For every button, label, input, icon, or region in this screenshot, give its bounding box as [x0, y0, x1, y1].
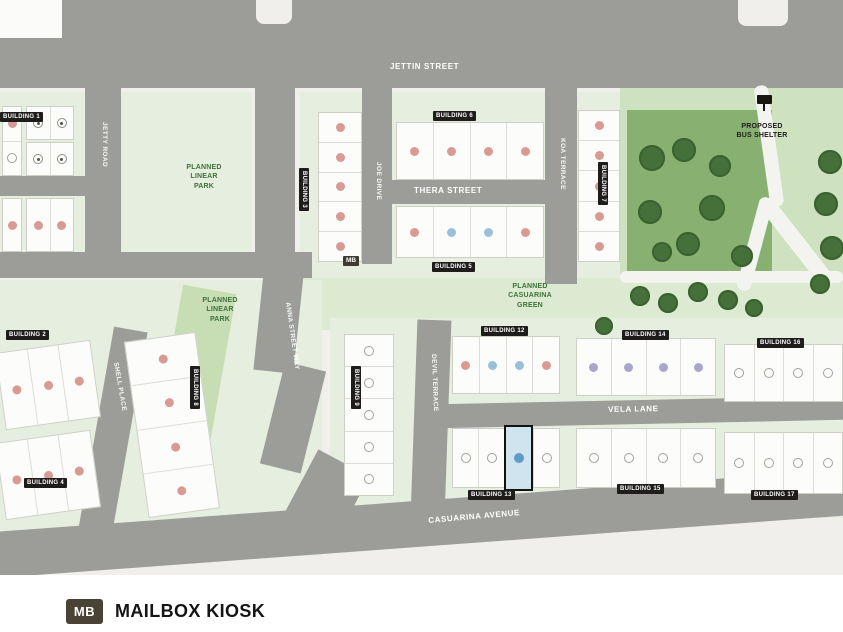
unit-status-dot: [521, 228, 530, 237]
unit-cell[interactable]: [532, 337, 559, 393]
unit-cell[interactable]: [611, 339, 646, 395]
street-label: JETTIN STREET: [390, 63, 459, 71]
unit-status-dot: [764, 458, 774, 468]
unit-status-dot: [461, 453, 471, 463]
building-footprint: [724, 344, 843, 402]
unit-status-dot: [364, 378, 374, 388]
bus-shelter-icon: [757, 95, 772, 111]
unit-cell[interactable]: [646, 429, 681, 487]
unit-status-dot: [823, 368, 833, 378]
unit-status-dot: [364, 410, 374, 420]
street-label: KOA TERRACE: [559, 138, 566, 190]
unit-cell[interactable]: [506, 123, 543, 179]
unit-status-dot: [410, 228, 419, 237]
map-legend: MB MAILBOX KIOSK: [0, 575, 843, 632]
tree-icon: [638, 200, 662, 224]
unit-status-dot: [364, 474, 374, 484]
unit-status-dot: [595, 212, 604, 221]
unit-cell[interactable]: [397, 123, 433, 179]
tree-icon: [718, 290, 738, 310]
tree-icon: [652, 242, 672, 262]
unit-status-dot: [43, 380, 53, 390]
building-footprint: [26, 142, 74, 176]
unit-status-dot: [793, 458, 803, 468]
unit-status-dot: [658, 453, 668, 463]
unit-status-dot: [8, 221, 17, 230]
unit-status-dot: [336, 153, 345, 162]
site-plan-map: BUILDING 1BUILDING 3BUILDING 6BUILDING 5…: [0, 0, 843, 575]
building-footprint: [452, 336, 560, 394]
unit-status-dot: [364, 442, 374, 452]
unit-status-dot: [595, 121, 604, 130]
unit-cell[interactable]: [478, 429, 504, 487]
unit-status-dot: [57, 118, 67, 128]
unit-status-dot: [694, 363, 703, 372]
unit-status-dot: [12, 384, 22, 394]
unit-status-dot: [336, 123, 345, 132]
unit-cell[interactable]: [579, 231, 619, 261]
unit-cell[interactable]: [506, 337, 533, 393]
unit-cell[interactable]: [754, 433, 784, 493]
building-label-chip: BUILDING 4: [24, 478, 67, 488]
road: [0, 0, 843, 88]
building-footprint: [26, 198, 74, 252]
building-footprint: [318, 112, 362, 262]
unit-status-dot: [589, 453, 599, 463]
legend-label: MAILBOX KIOSK: [115, 601, 265, 622]
unit-cell[interactable]: [319, 113, 361, 142]
unit-status-dot: [170, 442, 180, 452]
unit-cell[interactable]: [3, 199, 21, 251]
building-label-chip: BUILDING 13: [468, 490, 515, 500]
building-footprint: [724, 432, 843, 494]
selected-unit[interactable]: [504, 425, 533, 491]
unit-status-dot: [793, 368, 803, 378]
unit-cell[interactable]: [27, 199, 50, 251]
unit-cell[interactable]: [813, 433, 843, 493]
building-footprint: [2, 198, 22, 252]
unit-status-dot: [447, 228, 456, 237]
building-label-chip: BUILDING 8: [190, 366, 200, 409]
unit-cell[interactable]: [470, 207, 507, 257]
building-footprint: [452, 428, 560, 488]
tree-icon: [814, 192, 838, 216]
unit-status-dot: [34, 221, 43, 230]
unit-status-dot: [659, 363, 668, 372]
unit-cell[interactable]: [319, 172, 361, 202]
bus-shelter-label: PROPOSED BUS SHELTER: [726, 122, 798, 141]
building-footprint: [0, 430, 101, 521]
tree-icon: [818, 150, 842, 174]
tree-icon: [709, 155, 731, 177]
curb-cut: [738, 0, 788, 26]
unit-status-dot: [764, 368, 774, 378]
unit-status-dot: [74, 376, 84, 386]
unit-cell[interactable]: [319, 201, 361, 231]
unit-cell[interactable]: [397, 207, 433, 257]
unit-status-dot: [176, 486, 186, 496]
unit-cell[interactable]: [345, 335, 393, 366]
tree-icon: [639, 145, 665, 171]
unit-status-dot: [57, 154, 67, 164]
building-footprint: [396, 206, 544, 258]
unit-cell[interactable]: [579, 111, 619, 140]
unit-cell[interactable]: [50, 143, 74, 175]
unit-status-dot: [515, 361, 524, 370]
unit-cell[interactable]: [680, 429, 715, 487]
building-label-chip: BUILDING 9: [351, 366, 361, 409]
unit-cell[interactable]: [470, 123, 507, 179]
tree-icon: [745, 299, 763, 317]
tree-icon: [820, 236, 843, 260]
building-footprint: [344, 334, 394, 496]
unit-status-dot: [410, 147, 419, 156]
tree-icon: [676, 232, 700, 256]
unit-status-dot: [158, 354, 168, 364]
building-label-chip: BUILDING 17: [751, 490, 798, 500]
building-footprint: [0, 340, 101, 431]
unit-status-dot: [734, 458, 744, 468]
mailbox-kiosk-marker[interactable]: MB: [343, 256, 359, 266]
building-footprint: [396, 122, 544, 180]
unit-cell[interactable]: [3, 141, 21, 176]
unit-cell[interactable]: [725, 433, 754, 493]
unit-cell[interactable]: [680, 339, 715, 395]
tree-icon: [658, 293, 678, 313]
building-label-chip: BUILDING 1: [0, 112, 43, 122]
unit-status-dot: [484, 147, 493, 156]
park-label: PLANNED CASUARINA GREEN: [492, 282, 568, 310]
street-label: THERA STREET: [414, 187, 482, 195]
unit-status-dot: [447, 147, 456, 156]
unit-cell[interactable]: [453, 337, 479, 393]
unit-status-dot: [823, 458, 833, 468]
unit-cell[interactable]: [50, 199, 74, 251]
street-label: JETTY ROAD: [101, 122, 108, 167]
tree-icon: [630, 286, 650, 306]
tree-icon: [731, 245, 753, 267]
unit-cell[interactable]: [577, 429, 611, 487]
unit-status-dot: [57, 221, 66, 230]
tree-icon: [699, 195, 725, 221]
unit-status-dot: [336, 212, 345, 221]
unit-cell[interactable]: [577, 339, 611, 395]
building-footprint: [576, 428, 716, 488]
unit-status-dot: [595, 151, 604, 160]
unit-cell[interactable]: [506, 207, 543, 257]
tree-icon: [672, 138, 696, 162]
unit-status-dot: [12, 474, 22, 484]
building-label-chip: BUILDING 7: [598, 162, 608, 205]
unit-status-dot: [624, 453, 634, 463]
unit-status-dot: [7, 153, 17, 163]
building-label-chip: BUILDING 6: [433, 111, 476, 121]
bus-shelter-roof: [757, 95, 772, 104]
unit-status-dot: [693, 453, 703, 463]
unit-cell[interactable]: [646, 339, 681, 395]
building-label-chip: BUILDING 2: [6, 330, 49, 340]
unit-cell[interactable]: [27, 143, 50, 175]
unit-status-dot: [164, 398, 174, 408]
building-label-chip: BUILDING 14: [622, 330, 669, 340]
unit-cell[interactable]: [479, 337, 506, 393]
unit-status-dot: [461, 361, 470, 370]
unit-status-dot: [336, 182, 345, 191]
unit-cell[interactable]: [725, 345, 754, 401]
corner-lot: [0, 0, 62, 38]
unit-status-dot: [542, 453, 552, 463]
unit-cell[interactable]: [345, 431, 393, 463]
tree-icon: [688, 282, 708, 302]
unit-status-dot: [484, 228, 493, 237]
unit-status-dot: [488, 361, 497, 370]
mailbox-kiosk-badge-icon: MB: [66, 599, 103, 624]
bus-shelter-post: [763, 104, 765, 111]
unit-cell[interactable]: [783, 345, 813, 401]
building-footprint: [576, 338, 716, 396]
tree-icon: [810, 274, 830, 294]
unit-cell[interactable]: [579, 201, 619, 231]
unit-status-dot: [521, 147, 530, 156]
unit-status-dot: [33, 154, 43, 164]
park-label: PLANNED LINEAR PARK: [172, 163, 236, 191]
building-label-chip: BUILDING 15: [617, 484, 664, 494]
unit-status-dot: [589, 363, 598, 372]
road: [255, 88, 295, 268]
unit-status-dot: [542, 361, 551, 370]
unit-status-dot: [595, 242, 604, 251]
building-label-chip: BUILDING 16: [757, 338, 804, 348]
unit-cell[interactable]: [533, 429, 559, 487]
unit-status-dot: [336, 242, 345, 251]
unit-cell[interactable]: [813, 345, 843, 401]
unit-cell[interactable]: [143, 463, 218, 517]
unit-cell[interactable]: [453, 429, 478, 487]
building-label-chip: BUILDING 12: [481, 326, 528, 336]
unit-cell[interactable]: [754, 345, 784, 401]
unit-cell[interactable]: [433, 207, 470, 257]
unit-cell[interactable]: [50, 107, 74, 139]
road: [85, 88, 121, 260]
unit-status-dot: [514, 453, 524, 463]
unit-cell[interactable]: [783, 433, 813, 493]
unit-status-dot: [487, 453, 497, 463]
tree-icon: [595, 317, 613, 335]
unit-cell[interactable]: [433, 123, 470, 179]
unit-cell[interactable]: [319, 142, 361, 172]
park-label: PLANNED LINEAR PARK: [188, 296, 252, 324]
curb-cut: [256, 0, 292, 24]
street-label: DEVIL TERRACE: [430, 354, 439, 412]
unit-cell[interactable]: [611, 429, 646, 487]
unit-status-dot: [734, 368, 744, 378]
unit-status-dot: [74, 466, 84, 476]
building-label-chip: BUILDING 5: [432, 262, 475, 272]
unit-cell[interactable]: [345, 463, 393, 495]
street-label: JOE DRIVE: [375, 162, 382, 200]
road: [0, 176, 86, 196]
unit-status-dot: [624, 363, 633, 372]
street-label: VELA LANE: [608, 405, 659, 414]
building-label-chip: BUILDING 3: [299, 168, 309, 211]
unit-status-dot: [364, 346, 374, 356]
